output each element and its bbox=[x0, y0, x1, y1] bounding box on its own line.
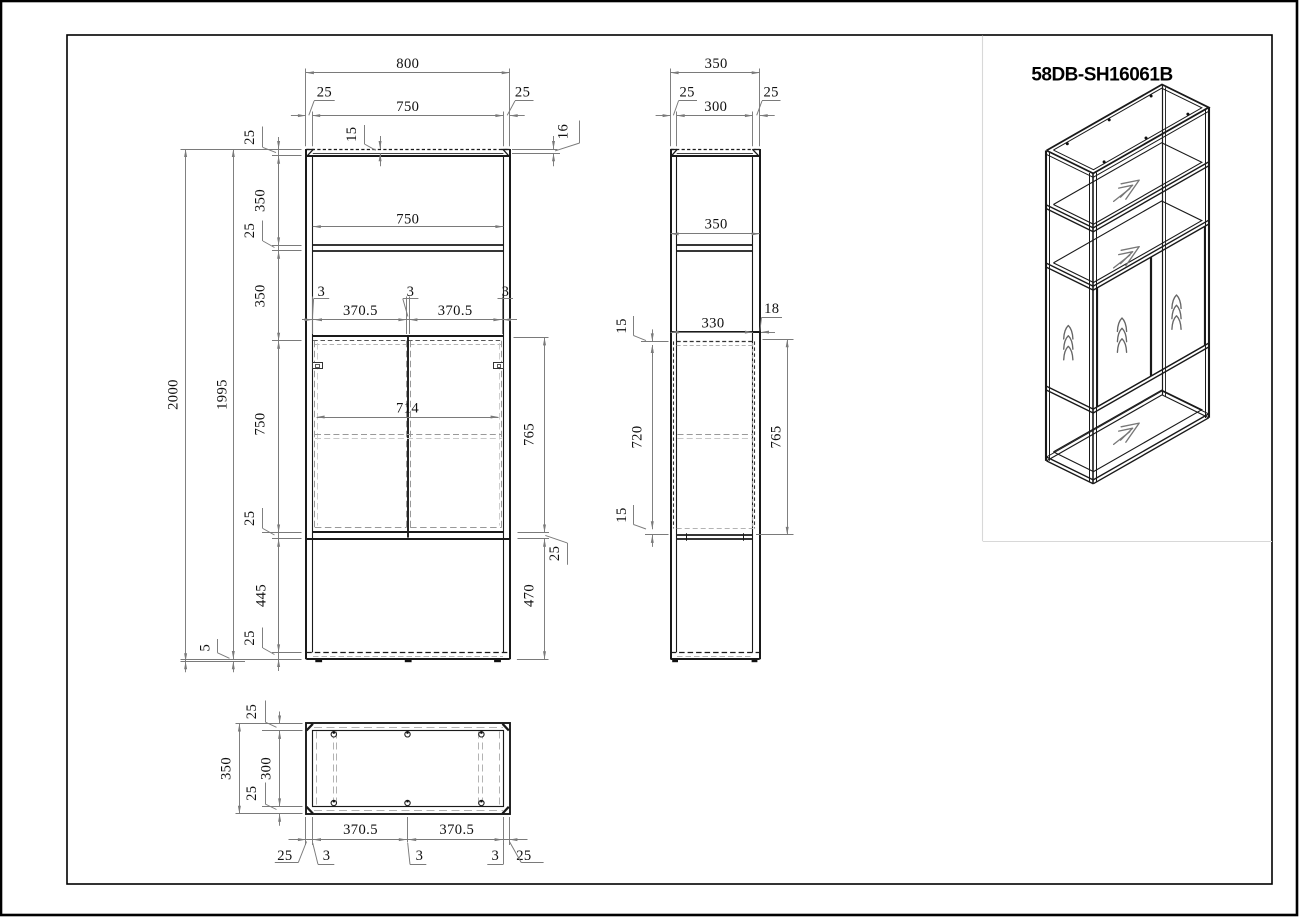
svg-text:3: 3 bbox=[416, 848, 424, 864]
svg-text:750: 750 bbox=[253, 412, 269, 435]
svg-text:25: 25 bbox=[516, 848, 531, 864]
svg-text:370.5: 370.5 bbox=[343, 822, 378, 838]
svg-text:300: 300 bbox=[704, 99, 727, 115]
svg-text:25: 25 bbox=[763, 85, 778, 101]
svg-text:25: 25 bbox=[244, 785, 260, 800]
svg-text:25: 25 bbox=[242, 129, 258, 144]
svg-text:1995: 1995 bbox=[214, 379, 230, 410]
svg-text:350: 350 bbox=[253, 284, 269, 307]
svg-text:5: 5 bbox=[198, 644, 214, 652]
svg-text:16: 16 bbox=[556, 124, 572, 139]
svg-text:750: 750 bbox=[396, 211, 419, 227]
svg-text:3: 3 bbox=[492, 848, 500, 864]
svg-text:25: 25 bbox=[242, 630, 258, 645]
svg-text:25: 25 bbox=[277, 848, 292, 864]
svg-text:25: 25 bbox=[515, 85, 530, 101]
svg-text:720: 720 bbox=[630, 425, 646, 448]
svg-text:3: 3 bbox=[502, 284, 510, 300]
svg-text:350: 350 bbox=[705, 56, 728, 72]
svg-text:300: 300 bbox=[259, 757, 275, 780]
svg-text:25: 25 bbox=[242, 511, 258, 526]
svg-text:750: 750 bbox=[396, 99, 419, 115]
svg-text:25: 25 bbox=[317, 85, 332, 101]
svg-text:25: 25 bbox=[679, 85, 694, 101]
svg-text:765: 765 bbox=[521, 423, 537, 446]
svg-text:350: 350 bbox=[705, 217, 728, 233]
svg-text:15: 15 bbox=[344, 126, 360, 141]
svg-text:765: 765 bbox=[768, 425, 784, 448]
svg-text:25: 25 bbox=[547, 546, 563, 561]
svg-text:3: 3 bbox=[407, 284, 415, 300]
svg-text:18: 18 bbox=[764, 301, 779, 317]
svg-text:370.5: 370.5 bbox=[439, 822, 474, 838]
svg-text:330: 330 bbox=[701, 315, 724, 331]
svg-text:3: 3 bbox=[323, 848, 331, 864]
svg-text:25: 25 bbox=[244, 704, 260, 719]
svg-text:470: 470 bbox=[522, 584, 538, 607]
svg-text:445: 445 bbox=[254, 584, 270, 607]
svg-text:58DB-SH16061B: 58DB-SH16061B bbox=[1031, 65, 1172, 86]
svg-text:15: 15 bbox=[614, 318, 630, 333]
svg-text:25: 25 bbox=[242, 223, 258, 238]
svg-text:370.5: 370.5 bbox=[438, 303, 473, 319]
svg-text:3: 3 bbox=[317, 284, 325, 300]
svg-text:714: 714 bbox=[396, 401, 419, 417]
svg-text:15: 15 bbox=[614, 507, 630, 522]
svg-text:800: 800 bbox=[396, 56, 419, 72]
svg-text:350: 350 bbox=[219, 757, 235, 780]
svg-text:370.5: 370.5 bbox=[343, 303, 378, 319]
svg-text:2000: 2000 bbox=[166, 379, 182, 410]
svg-text:350: 350 bbox=[253, 189, 269, 212]
